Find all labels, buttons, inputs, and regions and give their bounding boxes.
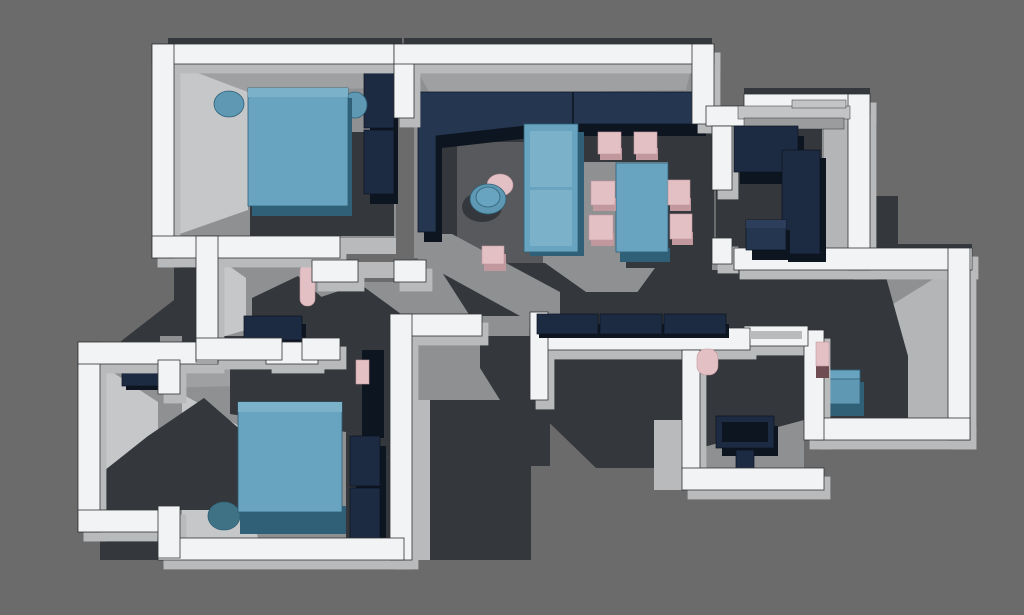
wall-hallway-north-bar2: [394, 260, 426, 282]
bench-cushion: [537, 314, 598, 334]
vanity-cabinet: [244, 316, 302, 340]
wall-closet-west: [78, 342, 100, 532]
wall-bedroom2-east: [390, 314, 412, 560]
wall-kitchen-west-upper: [712, 126, 732, 190]
wall-bedroom2-northwest-stub: [158, 360, 180, 394]
wardrobe: [350, 436, 380, 486]
nightstand-round: [214, 91, 244, 117]
wardrobe: [364, 130, 394, 194]
wall-bedroom2-south: [158, 538, 404, 560]
wall-bathroom-main-south: [682, 468, 824, 490]
floorplan-render: Top-down 3D axonometric render of an apa…: [0, 0, 1024, 615]
wall-bedroom1-west: [152, 44, 174, 258]
pink-accent: [356, 360, 369, 384]
cabinet: [122, 364, 162, 386]
bench-cushion: [600, 314, 662, 334]
wall-bedroom1-north: [152, 44, 402, 64]
study-chair: [816, 342, 829, 378]
wall-closet-south: [78, 510, 170, 532]
wall-study-south: [814, 418, 970, 440]
dining-chair: [668, 180, 690, 205]
dining-chair: [634, 132, 657, 154]
pouf: [482, 246, 504, 264]
exterior-shadow: [120, 258, 196, 342]
loveseat-cushion: [530, 190, 572, 246]
doorway-header: [750, 331, 802, 339]
kitchen-island-top-edge: [746, 220, 786, 228]
hallway-bench: [537, 314, 729, 338]
kitchen-door-shadow: [694, 124, 714, 260]
floorplan-3d-viewport[interactable]: Top-down 3D axonometric render of an apa…: [0, 0, 1024, 615]
kitchen-counter-step: [792, 100, 846, 108]
door-lintel: [356, 262, 396, 278]
dining-chair: [589, 215, 613, 240]
exterior-shadow: [530, 400, 550, 466]
exterior-shadow: [100, 532, 158, 560]
wall-bathroom-small-south: [196, 338, 282, 360]
kitchen-east-wall-face: [824, 114, 848, 260]
living-north-wall-face: [414, 64, 692, 94]
chair-back: [816, 342, 829, 366]
bathtub-basin: [722, 422, 768, 442]
nightstand-round: [208, 502, 240, 530]
wall-kitchen-east: [848, 94, 870, 270]
bed-headboard: [238, 402, 342, 412]
bathroom-wall-outer-face: [654, 420, 682, 490]
bench-cushion: [664, 314, 726, 334]
dining-chair: [598, 132, 621, 154]
door-lintel: [338, 238, 396, 254]
toilet: [697, 349, 718, 375]
wall-kitchen-west-lower: [712, 238, 732, 264]
wall-bathroom-small-stub: [302, 338, 340, 360]
double-bed: [238, 402, 342, 512]
hallway-shadow-east: [712, 270, 824, 330]
double-bed: [248, 88, 348, 206]
wall-living-north: [394, 44, 714, 64]
wardrobe: [364, 66, 394, 128]
loveseat-cushion: [530, 131, 572, 187]
dining-chair: [670, 214, 692, 239]
coffee-table-top: [476, 187, 500, 207]
wall-bedroom2-west-lower: [158, 506, 180, 558]
wall-hallway-north-bar1: [312, 260, 358, 282]
bedroom1-west-wall-face: [174, 64, 248, 236]
wall-bedroom1-south: [152, 236, 340, 258]
wall-study-east: [948, 248, 970, 440]
dining-chair: [591, 181, 615, 205]
bed-headboard: [248, 88, 348, 97]
wardrobe: [350, 488, 380, 538]
dining-table: [616, 163, 668, 252]
